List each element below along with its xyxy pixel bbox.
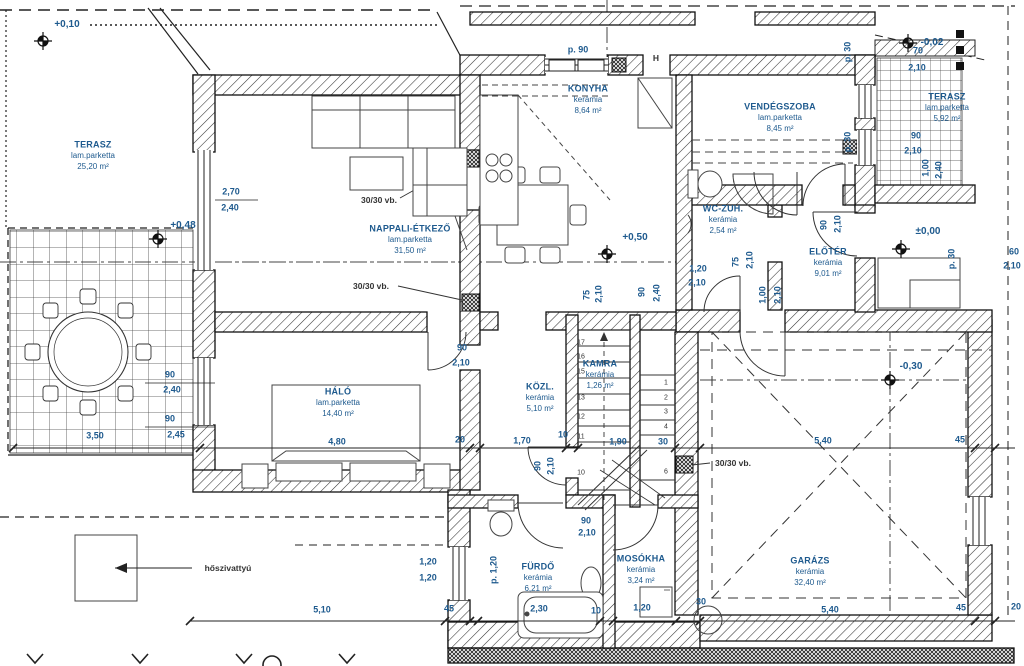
dimension-24: 1,20: [419, 558, 437, 567]
dimension-32: 70: [913, 47, 923, 56]
room-floor-terasz-left: lam.parketta: [71, 152, 115, 160]
dimension-55: p. 30: [948, 249, 957, 270]
stair-number-0: 17: [577, 340, 585, 347]
dimension-23: 30: [696, 598, 706, 607]
dimension-47: 2,10: [774, 286, 783, 304]
dimension-4: 90: [165, 415, 175, 424]
room-area-eloter: 9,01 m²: [814, 270, 841, 278]
room-floor-nappali-etkezo: lam.parketta: [388, 236, 432, 244]
dimension-6: 3,50: [86, 432, 104, 441]
dimension-26: 90: [457, 344, 467, 353]
dimension-29: 2,10: [578, 529, 596, 538]
floor-plan-labels: TERASZlam.parketta25,20 m²NAPPALI-ÉTKEZŐ…: [0, 0, 1024, 666]
room-floor-vendegszoba: lam.parketta: [758, 114, 802, 122]
room-area-halo: 14,40 m²: [322, 410, 354, 418]
stair-number-7: 1: [664, 380, 668, 387]
dimension-16: 45: [956, 604, 966, 613]
dimension-1: 2,40: [221, 204, 239, 213]
dimension-12: 30: [658, 438, 668, 447]
dimension-22: 1,20: [633, 604, 651, 613]
stair-number-10: 4: [664, 424, 668, 431]
dimension-35: 2,10: [904, 147, 922, 156]
dimension-21: 10: [591, 607, 601, 616]
room-name-wc-zuh: WC-ZUH.: [703, 205, 743, 214]
dimension-18: 5,10: [313, 606, 331, 615]
dimension-15: 5,40: [821, 606, 839, 615]
annotation-4: H: [653, 54, 659, 63]
room-area-nappali-etkezo: 31,50 m²: [394, 247, 426, 255]
room-area-terasz-right: 5,92 m²: [933, 115, 960, 123]
dimension-9: 1,70: [513, 437, 531, 446]
dimension-33: 2,10: [908, 64, 926, 73]
room-name-halo: HÁLÓ: [325, 388, 351, 397]
room-floor-eloter: kerámia: [814, 259, 842, 267]
room-name-terasz-right: TERASZ: [928, 93, 965, 102]
dimension-3: 2,40: [163, 386, 181, 395]
level-mark-5: -0,30: [900, 362, 923, 372]
room-floor-kamra: kerámia: [586, 371, 614, 379]
dimension-20: 2,30: [530, 605, 548, 614]
stair-number-6: 10: [577, 470, 585, 477]
dimension-36: 60: [1009, 248, 1019, 257]
room-floor-mosokha: kerámia: [627, 566, 655, 574]
dimension-50: 1,00: [922, 159, 931, 177]
dimension-17: 20: [1011, 603, 1021, 612]
room-floor-furdo: kerámia: [524, 574, 552, 582]
dimension-43: 2,40: [653, 284, 662, 302]
room-name-vendegszoba: VENDÉGSZOBA: [744, 103, 816, 112]
stair-number-5: 11: [577, 434, 584, 441]
level-mark-3: ±0,00: [916, 227, 941, 237]
room-floor-wc-zuh: kerámia: [709, 216, 737, 224]
dimension-5: 2,45: [167, 431, 185, 440]
dimension-7: 4,80: [328, 438, 346, 447]
room-name-kozl: KÖZL.: [526, 383, 554, 392]
dimension-54: p. 30: [844, 132, 853, 153]
stair-number-8: 2: [664, 395, 668, 402]
dimension-40: 75: [583, 290, 592, 300]
dimension-49: 2,10: [834, 215, 843, 233]
level-mark-4: -0,02: [921, 38, 944, 48]
dimension-51: 2,40: [935, 161, 944, 179]
level-mark-2: +0,50: [622, 233, 647, 243]
room-name-kamra: KAMRA: [583, 360, 618, 369]
room-name-terasz-left: TERASZ: [74, 141, 111, 150]
dimension-11: 1,90: [609, 438, 627, 447]
dimension-53: p. 30: [844, 42, 853, 63]
dimension-56: p. 90: [568, 46, 589, 55]
annotation-2: 30/30 vb.: [715, 459, 751, 468]
dimension-8: 20: [455, 436, 465, 445]
stair-number-2: 15: [577, 369, 585, 376]
dimension-37: 2,10: [1003, 262, 1021, 271]
dimension-34: 90: [911, 132, 921, 141]
room-name-nappali-etkezo: NAPPALI-ÉTKEZŐ: [369, 225, 450, 234]
room-area-wc-zuh: 2,54 m²: [709, 227, 736, 235]
room-floor-terasz-right: lam.parketta: [925, 104, 969, 112]
room-area-kamra: 1,26 m²: [586, 382, 613, 390]
dimension-30: 1,20: [689, 265, 707, 274]
dimension-42: 90: [638, 287, 647, 297]
room-area-terasz-left: 25,20 m²: [77, 163, 109, 171]
room-floor-kozl: kerámia: [526, 394, 554, 402]
dimension-0: 2,70: [222, 188, 240, 197]
room-name-konyha: KONYHA: [568, 85, 608, 94]
room-area-mosokha: 3,24 m²: [627, 577, 654, 585]
room-area-konyha: 8,64 m²: [574, 107, 601, 115]
dimension-14: 45: [955, 436, 965, 445]
room-floor-garazs: kerámia: [796, 568, 824, 576]
room-name-garazs: GARÁZS: [790, 557, 829, 566]
dimension-41: 2,10: [595, 285, 604, 303]
dimension-52: p. 1,20: [490, 556, 499, 584]
dimension-44: 75: [732, 257, 741, 267]
level-mark-1: +0,48: [170, 221, 195, 231]
floor-plan: TERASZlam.parketta25,20 m²NAPPALI-ÉTKEZŐ…: [0, 0, 1024, 666]
dimension-46: 1,00: [759, 286, 768, 304]
dimension-13: 5,40: [814, 437, 832, 446]
room-floor-halo: lam.parketta: [316, 399, 360, 407]
room-area-kozl: 5,10 m²: [526, 405, 553, 413]
dimension-19: 45: [444, 605, 454, 614]
dimension-25: 1,20: [419, 574, 437, 583]
level-mark-0: +0,10: [54, 20, 79, 30]
stair-number-9: 3: [664, 409, 668, 416]
dimension-38: 90: [534, 461, 543, 471]
room-area-furdo: 6,21 m²: [524, 585, 551, 593]
dimension-10: 10: [558, 431, 568, 440]
dimension-31: 2,10: [688, 279, 706, 288]
stair-number-1: 16: [577, 354, 585, 361]
dimension-27: 2,10: [452, 359, 470, 368]
room-name-mosokha: MOSÓKHA: [617, 555, 665, 564]
room-floor-konyha: kerámia: [574, 96, 602, 104]
dimension-45: 2,10: [746, 251, 755, 269]
stair-number-4: 12: [577, 414, 585, 421]
room-name-furdo: FÜRDŐ: [522, 563, 555, 572]
dimension-2: 90: [165, 371, 175, 380]
dimension-48: 90: [820, 220, 829, 230]
annotation-3: hőszivattyú: [205, 564, 252, 573]
room-area-garazs: 32,40 m²: [794, 579, 826, 587]
annotation-1: 30/30 vb.: [353, 282, 389, 291]
room-area-vendegszoba: 8,45 m²: [766, 125, 793, 133]
room-name-eloter: ELŐTÉR: [809, 248, 847, 257]
dimension-39: 2,10: [547, 457, 556, 475]
stair-number-3: 13: [577, 395, 585, 402]
annotation-0: 30/30 vb.: [361, 196, 397, 205]
stair-number-11: 6: [664, 469, 668, 476]
dimension-28: 90: [581, 517, 591, 526]
